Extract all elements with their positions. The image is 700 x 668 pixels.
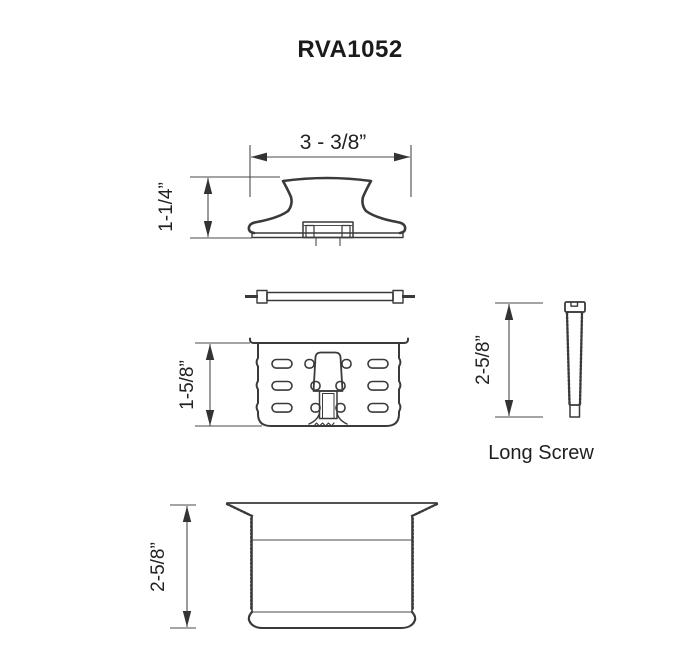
gasket-end-block-left xyxy=(257,291,267,304)
gasket-bar xyxy=(267,293,393,301)
arrowhead-down xyxy=(206,410,214,426)
slot xyxy=(368,404,388,413)
slot xyxy=(272,404,292,413)
arrowhead-down xyxy=(183,611,191,627)
post-head xyxy=(314,353,343,392)
arrowhead-right xyxy=(394,153,410,162)
screw-length-dimension: 2-5/8” xyxy=(473,303,543,417)
stopper-width-text: 3 - 3/8” xyxy=(300,131,367,154)
screw-head xyxy=(565,302,585,312)
long-screw-figure: 2-5/8” Long Screw xyxy=(473,302,594,464)
thread-texture-right xyxy=(580,313,582,404)
slot xyxy=(272,382,292,391)
basket-wall-outline xyxy=(257,343,401,426)
basket-figure: 1-5/8” xyxy=(177,339,408,427)
slot xyxy=(368,360,388,369)
arrowhead-up xyxy=(183,506,191,522)
slot xyxy=(368,382,388,391)
cap-profile-outline xyxy=(249,178,405,233)
basket-center-post xyxy=(309,353,347,427)
hub-post-right xyxy=(342,226,350,238)
page-title: RVA1052 xyxy=(297,36,402,63)
stopper-height-dimension: 1-1/4” xyxy=(156,177,280,238)
body-height-dimension: 2-5/8” xyxy=(148,505,196,628)
flange-side-right xyxy=(412,504,437,516)
slot-ear xyxy=(311,404,320,413)
basket-height-dimension: 1-5/8” xyxy=(177,343,262,426)
stopper-cap-figure: 3 - 3/8” 1-1/4” xyxy=(156,131,411,246)
screw-length-text: 2-5/8” xyxy=(473,335,494,385)
arrowhead-up xyxy=(204,178,212,194)
post-threaded-rod xyxy=(323,394,335,419)
arrowhead-left xyxy=(251,153,267,162)
arrowhead-up xyxy=(505,304,513,320)
body-bottom-bead xyxy=(249,612,415,628)
hub-post-left xyxy=(306,226,314,238)
slot-ear xyxy=(336,382,345,391)
diagram-canvas: RVA1052 3 - 3/8” 1-1/4” xyxy=(0,0,700,668)
basket-height-text: 1-5/8” xyxy=(177,360,198,410)
cap-center-hub xyxy=(303,222,353,246)
stopper-width-dimension: 3 - 3/8” xyxy=(250,131,411,197)
arrowhead-down xyxy=(204,221,212,237)
basket-rim xyxy=(250,339,408,344)
slot-ear xyxy=(305,360,314,369)
hub-body xyxy=(303,222,353,238)
body-height-text: 2-5/8” xyxy=(148,542,169,592)
slot xyxy=(272,360,292,369)
arrowhead-up xyxy=(206,344,214,360)
slot-ear xyxy=(342,360,351,369)
flange-side-left xyxy=(227,504,252,516)
stopper-height-text: 1-1/4” xyxy=(156,182,177,232)
bead-texture xyxy=(249,612,415,625)
basket-slots xyxy=(272,360,388,413)
gasket-figure xyxy=(245,291,415,304)
gasket-end-block-right xyxy=(393,291,403,304)
technical-drawing-page: RVA1052 3 - 3/8” 1-1/4” xyxy=(0,0,700,668)
long-screw-label: Long Screw xyxy=(488,442,594,464)
screw-tip xyxy=(570,405,580,417)
drain-body-figure: 2-5/8” xyxy=(148,503,437,628)
arrowhead-down xyxy=(505,400,513,416)
thread-texture-left xyxy=(567,313,570,404)
slot-ear xyxy=(311,382,320,391)
